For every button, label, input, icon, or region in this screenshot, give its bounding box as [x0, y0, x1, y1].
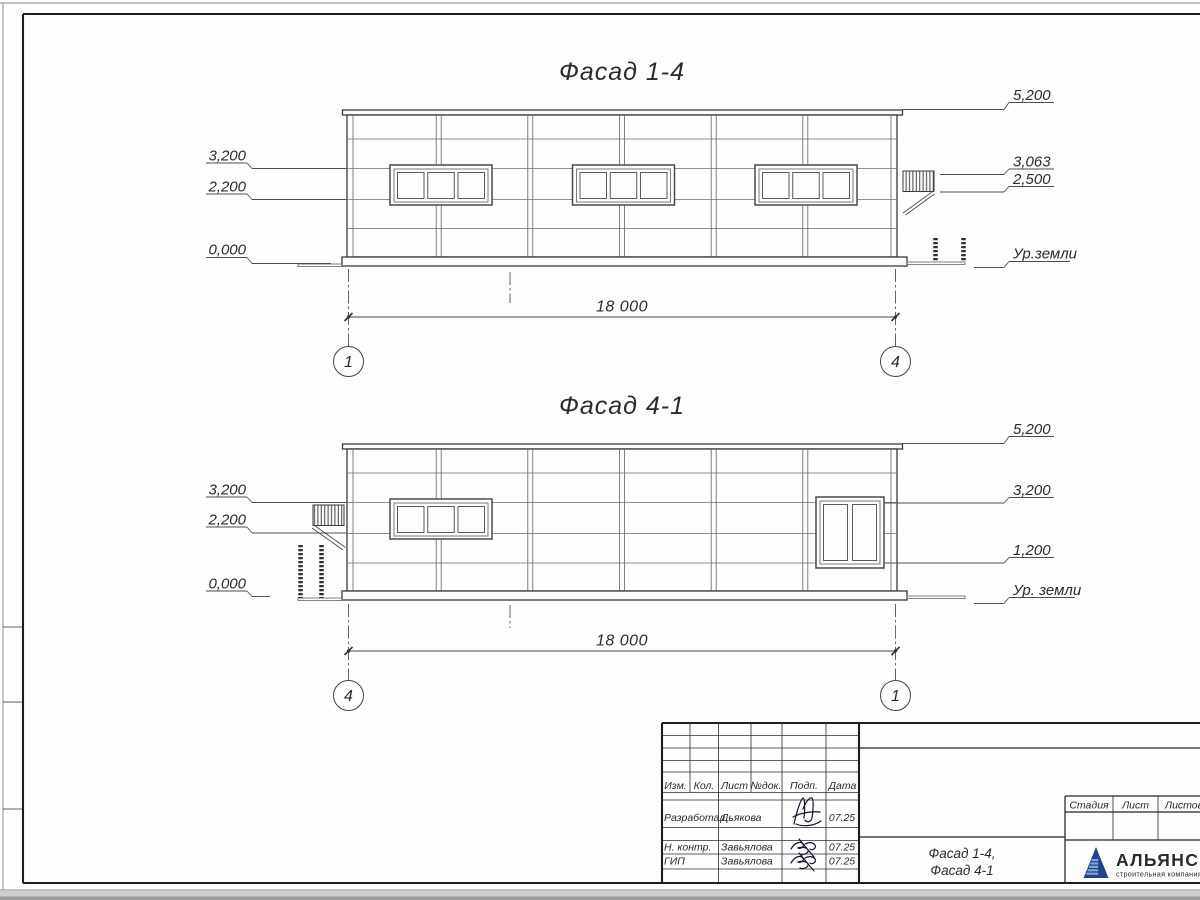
svg-text:2,200: 2,200 — [207, 512, 246, 529]
elevation-marks-left: 3,200 2,200 0,000 — [206, 148, 347, 264]
col-kol: Кол. — [694, 780, 715, 792]
stage-sheet-header: Стадия Лист Листов — [1069, 800, 1200, 812]
logo-company-subtitle: строительная компания — [1116, 870, 1200, 879]
svg-text:3,200: 3,200 — [208, 148, 246, 165]
staff-row: ГИП Завьялова 07.25 — [664, 853, 855, 871]
window — [755, 165, 857, 205]
stage-label: Стадия — [1069, 800, 1109, 812]
dimension-label: 18 000 — [596, 299, 648, 316]
svg-text:4: 4 — [891, 354, 900, 371]
svg-text:5,200: 5,200 — [1013, 421, 1051, 438]
date: 07.25 — [829, 812, 855, 824]
svg-text:0,000: 0,000 — [208, 576, 246, 593]
svg-text:2,200: 2,200 — [207, 179, 246, 196]
large-window — [816, 497, 884, 568]
sheets-label: Листов — [1164, 800, 1200, 812]
svg-text:5,200: 5,200 — [1013, 87, 1051, 104]
apron-right — [907, 596, 965, 599]
doc-title-line2: Фасад 4-1 — [930, 863, 993, 878]
apron-left — [298, 264, 342, 267]
elevation-mark: 0,000 — [206, 576, 270, 597]
elevation-mark: 0,000 — [206, 242, 331, 264]
base-plinth — [342, 591, 907, 600]
svg-text:4: 4 — [344, 688, 353, 705]
name: Завьялова — [721, 856, 773, 868]
window — [390, 165, 492, 205]
svg-text:3,200: 3,200 — [1013, 482, 1051, 499]
revision-header: Изм. Кол. Лист №док. Подп. Дата — [664, 780, 856, 792]
facade-4-1-view: Фасад 4-1 — [206, 392, 1082, 711]
facade-1-4-view: Фасад 1-4 — [206, 58, 1078, 377]
title-block: Изм. Кол. Лист №док. Подп. Дата Разработ… — [662, 723, 1200, 883]
elevation-mark: 1,200 — [885, 542, 1054, 563]
col-list: Лист — [720, 780, 748, 792]
name: Дьякова — [720, 812, 762, 824]
role: Н. контр. — [664, 842, 711, 854]
entrance-canopy — [903, 171, 935, 215]
company-logo: АЛЬЯНС строительная компания — [1084, 847, 1200, 879]
facade-1-4-building — [298, 110, 965, 267]
left-margin-stamp-cells — [3, 627, 23, 809]
role: ГИП — [664, 856, 685, 868]
elevation-mark: 5,200 — [903, 421, 1055, 444]
dimension-18000: 18 000 — [345, 269, 900, 347]
dimension-18000: 18 000 — [345, 604, 900, 681]
grid-axis-bubble: 1 — [881, 681, 911, 711]
svg-text:Ур. земли: Ур. земли — [1012, 582, 1082, 599]
apron-right — [907, 262, 965, 265]
facade-4-1-title: Фасад 4-1 — [559, 392, 685, 420]
sheet-label: Лист — [1121, 800, 1149, 812]
logo-company-name: АЛЬЯНС — [1116, 850, 1199, 870]
elevation-mark: 3,200 — [885, 482, 1054, 503]
drawing-sheet: Фасад 1-4 — [0, 0, 1200, 900]
facade-4-1-building — [298, 444, 965, 601]
svg-text:1: 1 — [344, 354, 353, 371]
elevation-mark: 2,200 — [206, 179, 347, 200]
elevation-marks-left: 3,200 2,200 0,000 — [206, 482, 347, 597]
col-izm: Изм. — [664, 780, 686, 792]
grid-axis-bubble: 4 — [881, 347, 911, 377]
svg-text:3,063: 3,063 — [1013, 154, 1051, 171]
col-ndok: №док. — [751, 780, 782, 792]
base-plinth — [342, 257, 907, 266]
apron-left — [298, 598, 342, 601]
col-podp: Подп. — [790, 780, 818, 792]
col-data: Дата — [828, 780, 857, 792]
elevation-mark: 5,200 — [903, 87, 1055, 110]
date: 07.25 — [829, 842, 855, 854]
svg-text:Ур.земли: Ур.земли — [1012, 246, 1078, 263]
svg-text:0,000: 0,000 — [208, 242, 246, 259]
svg-text:3,200: 3,200 — [208, 482, 246, 499]
dimension-label: 18 000 — [596, 633, 648, 650]
grid-axis-bubble: 4 — [334, 681, 364, 711]
signature — [791, 853, 815, 871]
svg-text:1: 1 — [891, 688, 900, 705]
grid-axis-bubble: 1 — [334, 347, 364, 377]
entrance-canopy — [312, 505, 346, 550]
staff-row: Разработал Дьякова 07.25 — [664, 798, 855, 826]
ground-level-mark: Ур. земли — [974, 582, 1082, 604]
facade-1-4-title: Фасад 1-4 — [559, 58, 685, 86]
doc-title-line1: Фасад 1-4, — [929, 846, 996, 861]
elevation-marks-right: 5,200 3,200 1,200 Ур. земли — [885, 421, 1082, 604]
elevation-mark: 3,200 — [206, 482, 347, 503]
window — [390, 499, 492, 539]
ground-level-mark: Ур.земли — [974, 246, 1078, 268]
window — [573, 165, 675, 205]
svg-text:2,500: 2,500 — [1012, 171, 1051, 188]
date: 07.25 — [829, 856, 855, 868]
svg-text:1,200: 1,200 — [1013, 542, 1051, 559]
name: Завьялова — [721, 842, 773, 854]
document-title-cell: Фасад 1-4, Фасад 4-1 — [929, 846, 996, 878]
signature — [793, 798, 821, 826]
elevation-mark: 3,200 — [206, 148, 347, 169]
facade-drawing-canvas: Фасад 1-4 — [0, 0, 1200, 900]
role: Разработал — [664, 812, 725, 824]
